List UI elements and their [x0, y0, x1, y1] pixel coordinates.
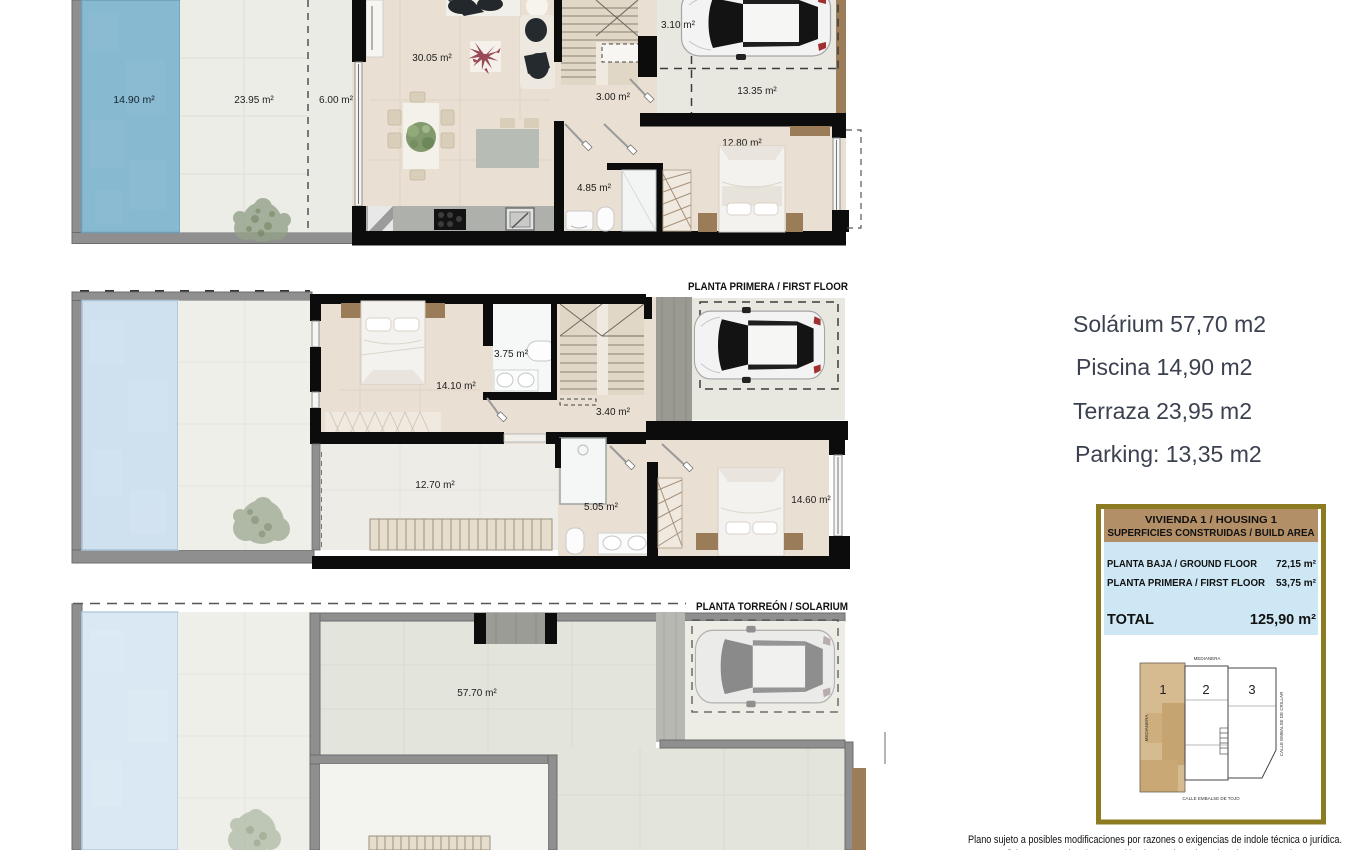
svg-text:14.10 m²: 14.10 m²	[436, 381, 476, 392]
svg-text:PLANTA PRIMERA / FIRST FLOOR: PLANTA PRIMERA / FIRST FLOOR	[688, 281, 848, 293]
svg-text:14.60 m²: 14.60 m²	[791, 495, 831, 506]
svg-text:30.05 m²: 30.05 m²	[412, 53, 452, 64]
svg-text:53,75 m²: 53,75 m²	[1276, 578, 1317, 589]
svg-text:4.85 m²: 4.85 m²	[577, 183, 612, 194]
svg-text:3.40 m²: 3.40 m²	[596, 407, 631, 418]
svg-text:72,15 m²: 72,15 m²	[1276, 559, 1317, 570]
svg-text:Solárium 57,70 m2: Solárium 57,70 m2	[1073, 311, 1266, 337]
svg-text:PLANTA TORREÓN / SOLARIUM: PLANTA TORREÓN / SOLARIUM	[696, 600, 848, 613]
svg-text:MEDIANERA: MEDIANERA	[1144, 715, 1149, 742]
svg-text:Piscina 14,90 m2: Piscina 14,90 m2	[1076, 354, 1252, 380]
svg-text:14.90 m²: 14.90 m²	[113, 94, 155, 106]
svg-text:PLANTA PRIMERA / FIRST FLOOR: PLANTA PRIMERA / FIRST FLOOR	[1107, 577, 1265, 589]
svg-text:VIVIENDA 1 / HOUSING 1: VIVIENDA 1 / HOUSING 1	[1145, 515, 1277, 526]
svg-text:3.00 m²: 3.00 m²	[596, 92, 631, 103]
svg-text:3.10 m²: 3.10 m²	[661, 20, 696, 31]
svg-text:125,90 m²: 125,90 m²	[1250, 612, 1316, 628]
svg-text:23.95 m²: 23.95 m²	[234, 95, 274, 106]
svg-text:SUPERFICIES CONSTRUIDAS / BUIL: SUPERFICIES CONSTRUIDAS / BUILD AREA	[1108, 528, 1315, 539]
svg-text:1: 1	[1159, 682, 1166, 697]
svg-text:12.70 m²: 12.70 m²	[415, 480, 455, 491]
svg-text:2: 2	[1202, 682, 1209, 697]
svg-text:57.70 m²: 57.70 m²	[457, 688, 497, 699]
svg-text:5.05 m²: 5.05 m²	[584, 502, 619, 513]
svg-text:CALLE EMBALSE DE TOJO: CALLE EMBALSE DE TOJO	[1182, 796, 1240, 801]
svg-text:13.35 m²: 13.35 m²	[737, 86, 777, 97]
svg-text:MEDIANERA: MEDIANERA	[1194, 656, 1221, 661]
svg-text:Plano sujeto a posibles modifi: Plano sujeto a posibles modificaciones p…	[968, 834, 1342, 846]
svg-text:TOTAL: TOTAL	[1107, 612, 1154, 628]
svg-text:3: 3	[1248, 682, 1255, 697]
svg-text:CALLE EMBALSE DE CRILLAR: CALLE EMBALSE DE CRILLAR	[1279, 691, 1284, 756]
svg-text:PLANTA BAJA / GROUND FLOOR: PLANTA BAJA / GROUND FLOOR	[1107, 558, 1257, 570]
svg-text:Terraza 23,95 m2: Terraza 23,95 m2	[1073, 398, 1252, 424]
svg-text:Parking: 13,35 m2: Parking: 13,35 m2	[1075, 441, 1262, 467]
svg-text:6.00 m²: 6.00 m²	[319, 95, 354, 106]
svg-text:3.75 m²: 3.75 m²	[494, 349, 529, 360]
